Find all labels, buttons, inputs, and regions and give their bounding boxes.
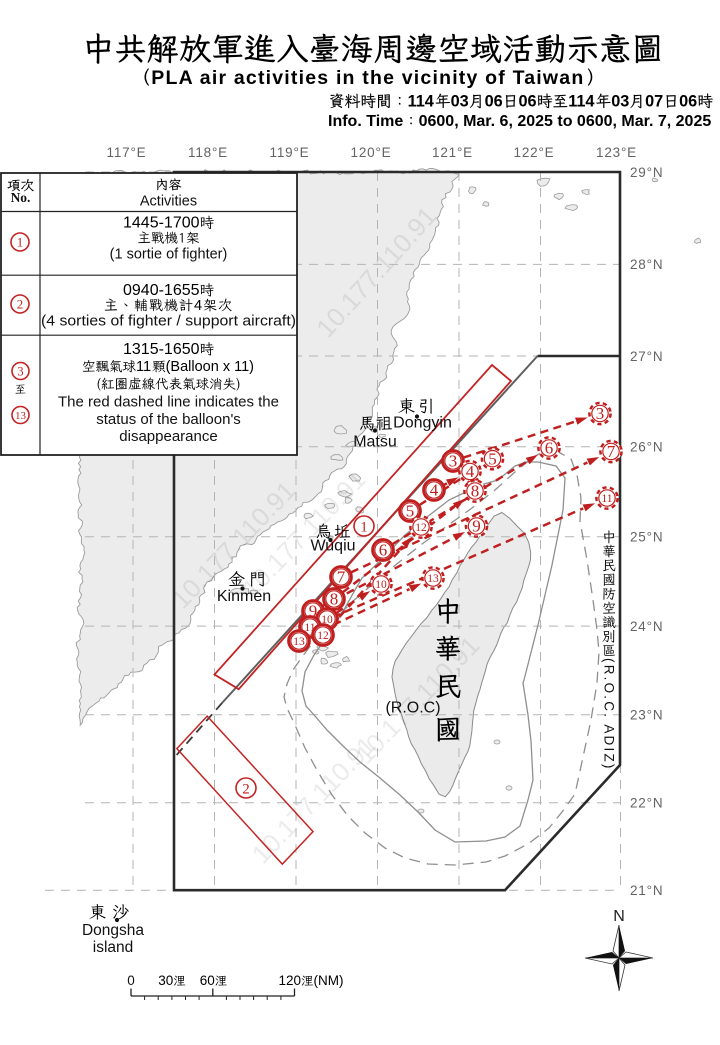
- svg-text:Matsu: Matsu: [353, 434, 397, 451]
- svg-text:3: 3: [596, 404, 605, 423]
- svg-text:1315-1650: 1315-1650: [123, 341, 200, 358]
- svg-text:10: 10: [375, 579, 387, 591]
- svg-text:114: 114: [568, 93, 594, 111]
- svg-text:Kinmen: Kinmen: [217, 588, 271, 605]
- svg-text:4: 4: [466, 462, 475, 481]
- svg-text:0940-1655: 0940-1655: [123, 282, 200, 299]
- svg-text:27°N: 27°N: [630, 349, 663, 364]
- svg-text:21°N: 21°N: [630, 883, 663, 898]
- svg-text:60: 60: [200, 973, 215, 988]
- svg-text:Info. Time: Info. Time: [328, 113, 403, 130]
- svg-text:N: N: [613, 908, 625, 925]
- svg-text:29°N: 29°N: [630, 165, 663, 180]
- svg-text:23°N: 23°N: [630, 708, 663, 723]
- svg-text:117°E: 117°E: [107, 145, 147, 160]
- svg-text:119°E: 119°E: [270, 145, 310, 160]
- svg-text:(R.O.C. ADIZ): (R.O.C. ADIZ): [602, 658, 617, 771]
- svg-text:06: 06: [519, 93, 537, 111]
- svg-text:2: 2: [17, 297, 24, 312]
- svg-text:13: 13: [15, 410, 27, 422]
- svg-text:7: 7: [607, 442, 616, 461]
- svg-text:Activities: Activities: [140, 194, 197, 210]
- svg-text:24°N: 24°N: [630, 619, 663, 634]
- svg-text:114: 114: [408, 93, 434, 111]
- svg-text:(R.O.C): (R.O.C): [385, 700, 440, 717]
- svg-text:disappearance: disappearance: [119, 428, 217, 445]
- svg-text:12: 12: [317, 630, 329, 642]
- svg-text:06: 06: [485, 93, 503, 111]
- svg-text:123°E: 123°E: [596, 145, 637, 160]
- svg-text:25°N: 25°N: [630, 530, 663, 545]
- svg-text:PLA air activities in the vici: PLA air activities in the vicinity of Ta…: [151, 67, 584, 89]
- svg-text:No.: No.: [11, 190, 31, 205]
- svg-text:6: 6: [379, 541, 388, 560]
- svg-text:6: 6: [545, 439, 554, 458]
- svg-text:1445-1700: 1445-1700: [123, 215, 200, 232]
- svg-text:8: 8: [471, 482, 480, 501]
- svg-text:03: 03: [451, 93, 469, 111]
- svg-text:status of the balloon's: status of the balloon's: [96, 411, 241, 428]
- svg-text:0: 0: [127, 973, 135, 988]
- svg-text:121°E: 121°E: [432, 145, 473, 160]
- svg-text:Dongsha: Dongsha: [82, 922, 144, 939]
- svg-text:(1 sortie of fighter): (1 sortie of fighter): [110, 247, 228, 263]
- svg-text:13: 13: [293, 636, 305, 648]
- svg-text:3: 3: [17, 365, 23, 379]
- svg-text:4: 4: [430, 481, 439, 500]
- svg-text:5: 5: [406, 502, 415, 521]
- svg-text:3: 3: [449, 452, 458, 471]
- svg-text:22°N: 22°N: [630, 796, 663, 811]
- svg-text:07: 07: [645, 93, 663, 111]
- svg-text:1: 1: [17, 235, 24, 250]
- svg-text:28°N: 28°N: [630, 257, 663, 272]
- svg-text:11: 11: [136, 359, 151, 375]
- svg-text:122°E: 122°E: [514, 145, 555, 160]
- svg-text:island: island: [93, 939, 134, 956]
- svg-text:0600, Mar. 6, 2025 to 0600, Ma: 0600, Mar. 6, 2025 to 0600, Mar. 7, 2025: [419, 113, 712, 130]
- svg-text:13: 13: [427, 573, 439, 585]
- svg-text:120°E: 120°E: [351, 145, 392, 160]
- svg-text:(NM): (NM): [314, 973, 344, 988]
- svg-text:120: 120: [279, 973, 302, 988]
- svg-text:03: 03: [611, 93, 629, 111]
- svg-text:06: 06: [679, 93, 697, 111]
- svg-text:26°N: 26°N: [630, 440, 663, 455]
- svg-text:2: 2: [242, 781, 250, 797]
- svg-text:(4 sorties of fighter / suppor: (4 sorties of fighter / support aircraft…: [41, 313, 296, 330]
- svg-text:8: 8: [330, 590, 339, 609]
- svg-text:5: 5: [488, 449, 497, 468]
- svg-text:Dongyin: Dongyin: [393, 415, 452, 432]
- svg-text:1: 1: [360, 519, 368, 535]
- svg-text:118°E: 118°E: [188, 145, 228, 160]
- svg-text:12: 12: [415, 522, 427, 534]
- svg-text:Wuqiu: Wuqiu: [310, 538, 355, 555]
- svg-text:The red dashed line indicates: The red dashed line indicates the: [58, 394, 279, 411]
- svg-text:30: 30: [158, 973, 173, 988]
- svg-text:9: 9: [472, 517, 481, 536]
- svg-text:(Balloon x 11): (Balloon x 11): [166, 359, 254, 375]
- svg-text:11: 11: [601, 493, 612, 505]
- svg-text:7: 7: [337, 568, 346, 587]
